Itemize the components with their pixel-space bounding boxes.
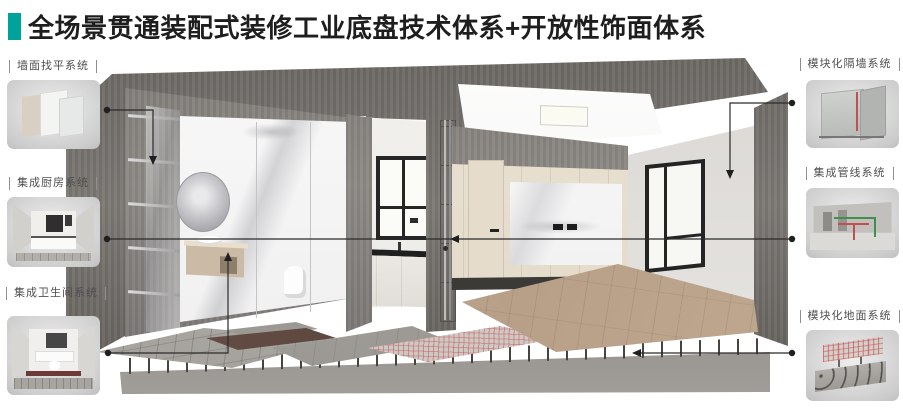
kitchen-side-wall-graphic — [13, 204, 32, 256]
red-pipe-graphic — [853, 223, 855, 240]
integrated-kitchen-thumbnail — [7, 197, 100, 267]
partition-red-joint-graphic — [856, 92, 858, 132]
room-cutaway-render — [0, 0, 903, 412]
heating-coil-module-graphic — [823, 337, 883, 362]
vanity-open-shelf — [220, 257, 237, 275]
callout-label-wall-leveling: 墙面找平系统 — [0, 60, 106, 73]
modular-floor-thumbnail — [806, 330, 899, 401]
callout-label-piping: 集成管线系统 — [796, 167, 903, 180]
toilet — [284, 266, 306, 298]
callout-label-bathroom: 集成卫生间系统 — [0, 287, 112, 300]
leaning-glass-panels — [146, 106, 180, 337]
kitchen-window-graphic — [46, 215, 63, 232]
bathroom-floor-graphic — [14, 378, 92, 388]
wall-panel-graphic — [59, 95, 84, 137]
kitchen-socket — [410, 218, 418, 223]
right-window — [645, 159, 705, 273]
partition-panel-graphic — [860, 86, 886, 141]
bathroom-threshold-graphic — [26, 371, 82, 376]
entry-door — [468, 160, 504, 284]
marble-panel-seam — [310, 122, 311, 312]
window-mullion — [380, 206, 426, 209]
wall-opening-graphic — [823, 212, 832, 232]
window-mullion — [402, 160, 405, 236]
riser-pipe — [444, 120, 446, 320]
kitchen-side-wall-graphic — [76, 204, 95, 256]
green-pipe-graphic — [874, 217, 876, 237]
kitchen-window — [376, 156, 430, 240]
wash-basin — [196, 236, 222, 245]
callout-label-partition: 模块化隔墙系统 — [796, 58, 903, 71]
floor-base-module-graphic — [815, 361, 886, 392]
green-pipe-graphic — [834, 217, 876, 219]
infographic-slide: 全场景贯通装配式装修工业底盘技术体系+开放性饰面体系 — [0, 0, 903, 412]
modular-partition-thumbnail — [806, 80, 899, 148]
marble-panel-seam — [256, 122, 257, 318]
ceiling-led-panel-light — [540, 105, 588, 127]
partition-track-graphic — [819, 136, 884, 138]
wall-socket — [567, 224, 577, 230]
kitchen-cabinets-graphic — [31, 236, 76, 249]
wall-opening-graphic — [838, 210, 847, 231]
integrated-piping-thumbnail — [806, 188, 899, 258]
window-mullion — [664, 167, 667, 267]
wall-socket — [553, 224, 563, 230]
range-hood-graphic — [65, 215, 72, 226]
toilet-graphic — [49, 361, 60, 370]
bathroom-mirror-graphic — [46, 333, 66, 347]
callout-label-floor: 模块化地面系统 — [796, 310, 903, 323]
marble-medallion — [176, 172, 230, 232]
kitchen-floor-graphic — [16, 253, 90, 261]
vanity-cabinet — [186, 245, 244, 277]
window-mullion — [664, 233, 701, 240]
callout-label-kitchen: 集成厨房系统 — [0, 177, 106, 190]
wall-leveling-thumbnail — [7, 80, 100, 149]
riser-pipe — [449, 120, 451, 320]
pipe-valve — [443, 246, 448, 251]
door-handle — [490, 229, 499, 232]
integrated-bathroom-thumbnail — [7, 316, 100, 395]
